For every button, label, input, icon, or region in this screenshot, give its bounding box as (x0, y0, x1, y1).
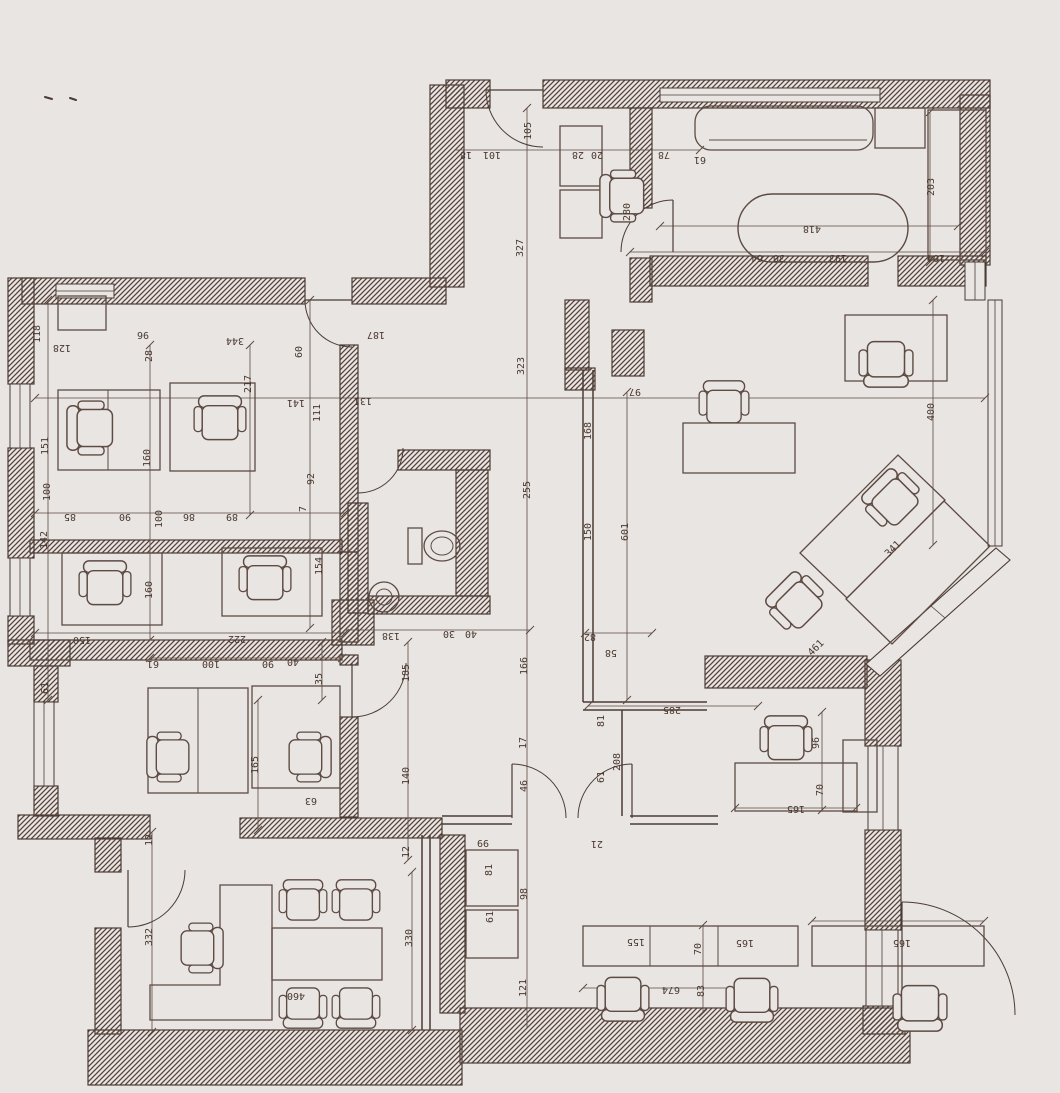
chair-arm (279, 890, 286, 913)
dim-label: 155 (627, 936, 645, 947)
dim-label: 166 (519, 657, 530, 675)
dim-label: 60 (294, 346, 305, 358)
dim-label: 78 (658, 149, 670, 160)
chair-arm (157, 732, 181, 740)
wall-segment (34, 786, 58, 816)
office-chair (239, 556, 291, 600)
dim-label: 96 (137, 329, 149, 340)
office-chair (289, 732, 331, 782)
wall-segment (565, 368, 595, 390)
dim-label: 101 (483, 149, 501, 160)
wall-segment (705, 656, 867, 688)
dim-label: 35 (314, 673, 325, 685)
chair-seat (181, 931, 214, 965)
wall-segment (630, 258, 652, 302)
dim-label: 332 (144, 928, 155, 946)
window (660, 88, 880, 102)
dim-label: 323 (516, 357, 527, 375)
dim-label: 168 (583, 422, 594, 440)
office-chair (181, 923, 223, 973)
wall-segment (446, 80, 490, 108)
chair-arm (194, 407, 202, 432)
office-chair (147, 732, 189, 782)
dim-label: 64 (751, 252, 763, 263)
dim-label: 18 (460, 149, 472, 160)
dim-label: 280 (622, 203, 633, 221)
dim-label: 20 (591, 149, 603, 160)
dim-label: 61 (40, 682, 51, 694)
chair-seat (87, 571, 123, 605)
dim-label: 86 (183, 511, 195, 522)
dim-label: 100 (154, 510, 165, 528)
chair-arm (332, 890, 339, 913)
dim-label: 165 (893, 937, 911, 948)
wall-segment (456, 470, 488, 596)
dim-label: 61 (694, 154, 706, 165)
wall-segment (430, 85, 464, 287)
wall-segment (340, 655, 358, 665)
wall-segment (865, 830, 901, 930)
chair-arm (770, 986, 778, 1011)
dim-label: 83 (696, 985, 707, 997)
chair-arm (189, 965, 213, 973)
chair-arm (939, 994, 947, 1020)
wall-segment (398, 450, 490, 470)
chair-seat (247, 566, 283, 600)
dim-label: 89 (226, 511, 238, 522)
chair-seat (202, 406, 238, 440)
dim-label: 344 (226, 335, 244, 346)
office-chair (859, 342, 913, 388)
wall-segment (565, 300, 589, 370)
dim-label: 82 (584, 631, 596, 642)
meeting-chair (279, 880, 327, 920)
window (10, 384, 30, 448)
wall-segment (95, 928, 121, 1034)
dim-label: 81 (596, 715, 607, 727)
wall-segment (88, 1030, 462, 1085)
dim-label: 21 (591, 838, 603, 849)
dim-label: 81 (484, 864, 495, 876)
dim-label: 160 (142, 449, 153, 467)
dim-label: 96 (811, 737, 822, 749)
dim-label: 90 (119, 511, 131, 522)
dim-label: 58 (605, 647, 617, 658)
office-chair (699, 381, 749, 423)
office-chair (194, 396, 246, 440)
dim-label: 138 (382, 630, 400, 641)
chair-arm (157, 774, 181, 782)
window (965, 262, 985, 300)
dim-label: 70 (815, 784, 826, 796)
chair-seat (901, 986, 938, 1021)
dim-label: 193 (829, 252, 847, 263)
wall-segment (8, 448, 34, 558)
dim-label: 150 (73, 634, 91, 645)
chair-arm (78, 447, 104, 455)
dim-label: 327 (515, 239, 526, 257)
dim-label: 400 (926, 403, 937, 421)
chair-seat (77, 409, 112, 446)
wall-segment (612, 330, 644, 376)
dim-label: 100 (202, 658, 220, 669)
dim-label: 92 (306, 473, 317, 485)
dim-label: 70 (693, 943, 704, 955)
dim-label: 30 (773, 252, 785, 263)
dim-label: 85 (64, 511, 76, 522)
chair-arm (726, 986, 734, 1011)
dim-label: 165 (736, 937, 754, 948)
floorplan-drawing: 1810110528207861327280418203643019310412… (0, 0, 1060, 1093)
chair-arm (611, 170, 636, 178)
dim-label: 140 (401, 767, 412, 785)
wall-segment (348, 503, 368, 613)
dim-label: 12 (144, 834, 155, 846)
dim-label: 30 (443, 628, 455, 639)
chair-arm (79, 572, 87, 597)
dim-label: 61 (596, 771, 607, 783)
dim-label: 17 (518, 737, 529, 749)
chair-arm (297, 732, 321, 740)
dim-label: 28 (144, 350, 155, 362)
chair-arm (372, 995, 379, 1018)
chair-seat (734, 978, 770, 1012)
wall-segment (240, 818, 442, 838)
wall-segment (8, 640, 70, 666)
chair-arm (283, 567, 291, 592)
chair-arm (78, 401, 104, 409)
dim-label: 111 (312, 404, 323, 422)
dim-label: 99 (477, 837, 489, 848)
dim-label: 97 (629, 386, 641, 397)
chair-arm (279, 995, 286, 1018)
chair-arm (319, 890, 326, 913)
chair-arm (189, 923, 213, 931)
chair-arm (699, 391, 707, 415)
chair-arm (372, 890, 379, 913)
meeting-chair (332, 988, 380, 1028)
dim-label: 217 (243, 375, 254, 393)
dim-label: 63 (305, 795, 317, 806)
dim-label: 330 (404, 929, 415, 947)
dim-label: 90 (262, 658, 274, 669)
dim-label: 165 (787, 803, 805, 814)
dim-label: 460 (287, 990, 305, 1001)
chair-seat (707, 390, 741, 423)
dim-label: 128 (53, 342, 71, 353)
chair-arm (332, 995, 339, 1018)
wall-segment (8, 278, 34, 384)
dim-label: 98 (519, 888, 530, 900)
wall-segment (460, 1008, 910, 1063)
chair-arm (319, 995, 326, 1018)
dim-label: 154 (314, 557, 325, 575)
chair-seat (156, 740, 189, 774)
chair-seat (768, 726, 804, 760)
dim-label: 151 (40, 437, 51, 455)
dim-label: 28 (572, 149, 584, 160)
dim-label: 185 (401, 664, 412, 682)
dim-label: 40 (287, 656, 299, 667)
wall-segment (30, 540, 342, 553)
chair-seat (340, 889, 373, 920)
dim-label: 131 (354, 395, 372, 406)
office-chair (726, 978, 778, 1022)
dim-label: 105 (523, 122, 534, 140)
dim-label: 121 (518, 979, 529, 997)
chair-arm (741, 391, 749, 415)
chair-arm (760, 727, 768, 752)
dim-label: 142 (39, 531, 50, 549)
chair-arm (641, 985, 649, 1010)
chair-arm (297, 774, 321, 782)
dim-label: 160 (144, 581, 155, 599)
office-chair (760, 716, 812, 760)
wall-segment (340, 717, 358, 817)
dim-label: 61 (147, 658, 159, 669)
chair-arm (238, 407, 246, 432)
dim-label: 100 (42, 483, 53, 501)
dim-label: 150 (583, 523, 594, 541)
window (10, 558, 30, 616)
chair-arm (893, 994, 901, 1020)
office-chair (67, 401, 113, 455)
dim-label: 12 (401, 846, 412, 858)
chair-seat (340, 988, 373, 1019)
dim-label: 255 (522, 481, 533, 499)
dim-label: 674 (662, 984, 680, 995)
chair-seat (867, 342, 904, 377)
meeting-chair (332, 880, 380, 920)
wall-segment (18, 815, 150, 839)
dim-label: 165 (250, 756, 261, 774)
wall-segment (440, 835, 465, 1013)
dim-label: 285 (663, 704, 681, 715)
dim-label: 118 (32, 325, 43, 343)
dim-label: 208 (612, 753, 623, 771)
dim-label: 187 (367, 329, 385, 340)
chair-seat (289, 740, 322, 774)
dim-label: 203 (926, 178, 937, 196)
office-chair (597, 977, 649, 1021)
dim-label: 46 (519, 780, 530, 792)
chair-arm (239, 567, 247, 592)
window (868, 746, 898, 830)
office-chair (893, 986, 947, 1032)
wall-segment (95, 838, 121, 872)
dim-label: 40 (465, 628, 477, 639)
dim-label: 418 (803, 223, 821, 234)
dim-label: 61 (485, 911, 496, 923)
office-chair (79, 561, 131, 605)
window (34, 702, 54, 786)
scanned-floorplan-page: 1810110528207861327280418203643019310412… (0, 0, 1060, 1093)
dim-label: 104 (927, 252, 945, 263)
chair-arm (123, 572, 131, 597)
chair-arm (859, 350, 867, 376)
window (988, 300, 1002, 546)
dim-label: 141 (287, 397, 305, 408)
chair-seat (605, 977, 641, 1011)
dim-label: 222 (228, 633, 246, 644)
dim-label: 601 (620, 523, 631, 541)
dim-label: 7 (298, 506, 309, 512)
chair-arm (597, 985, 605, 1010)
chair-arm (905, 350, 913, 376)
chair-seat (287, 889, 320, 920)
